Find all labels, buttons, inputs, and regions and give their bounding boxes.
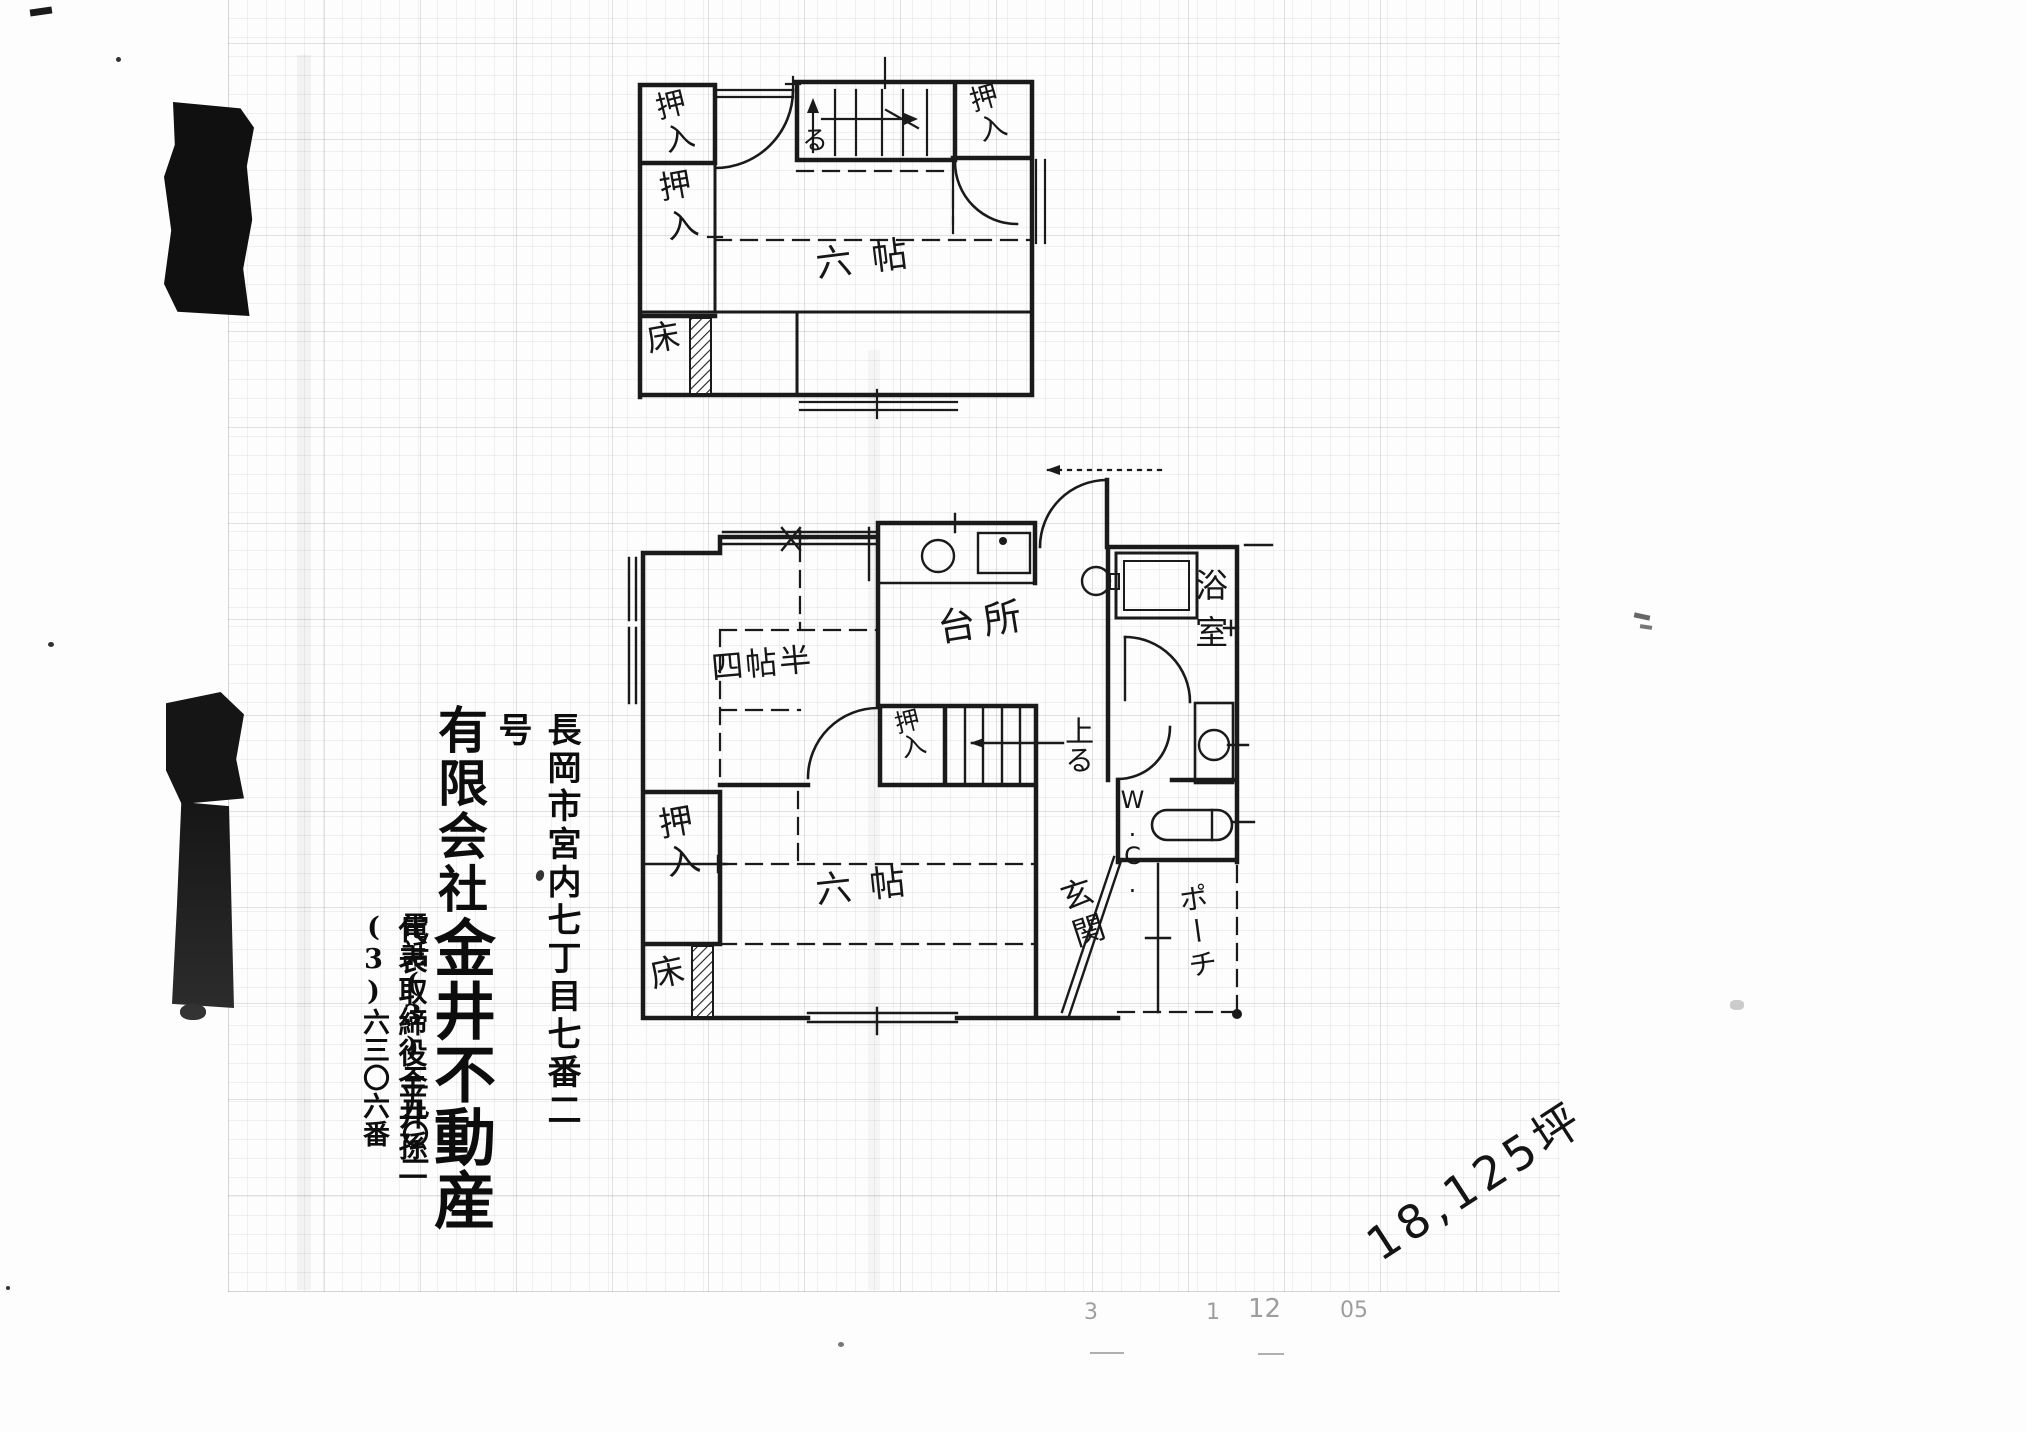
tokonoma-post [692, 946, 713, 1017]
faint-mark: 05 [1340, 1298, 1368, 1323]
detail-lines [629, 514, 1272, 1034]
lavatory-box [1195, 703, 1233, 783]
bathtub-outer [1116, 553, 1197, 618]
bathtub-inner [1124, 561, 1189, 610]
toilet-bowl [1152, 810, 1232, 840]
tokonoma-post [690, 318, 711, 394]
stair-arrowheads [807, 98, 918, 125]
label-2f-tokonoma: 床 [644, 318, 682, 357]
porch-corner-dot [1232, 1009, 1242, 1019]
label-1f-tokonoma: 床 [647, 953, 687, 994]
faint-mark: 12 [1248, 1294, 1281, 1324]
kitchen-sink [922, 540, 954, 572]
first-floor-plan [629, 465, 1272, 1034]
label-1f-room-four-half: 四帖半 [710, 643, 814, 684]
faint-dash [1258, 1353, 1284, 1355]
tatami-dashed [715, 165, 1032, 240]
label-1f-toilet: W.C. [1120, 786, 1144, 898]
label-1f-stairs-up: 上る [1062, 716, 1092, 774]
label-1f-bathroom: 浴室 [1192, 568, 1226, 662]
label-2f-stairs-up: る [802, 128, 828, 155]
faint-dash [1090, 1352, 1124, 1354]
stove-knob [999, 537, 1007, 545]
lavatory-basin [1199, 730, 1229, 760]
scanned-floorplan-document: 押入 押入 押入 床 六帖 る 四帖半 台所 浴室 W.C. 押入 押入 床 六… [0, 0, 2026, 1432]
company-name-prefix: 有限会社 [430, 704, 489, 916]
faint-mark: 1 [1206, 1300, 1220, 1325]
company-name-main: 金井不動産 [423, 916, 496, 1231]
faint-mark: 3 [1084, 1300, 1098, 1325]
company-phone: 電話(3)三九〇一(3)六三〇六番 [354, 912, 432, 1242]
floorplan-drawing [0, 0, 2026, 1432]
